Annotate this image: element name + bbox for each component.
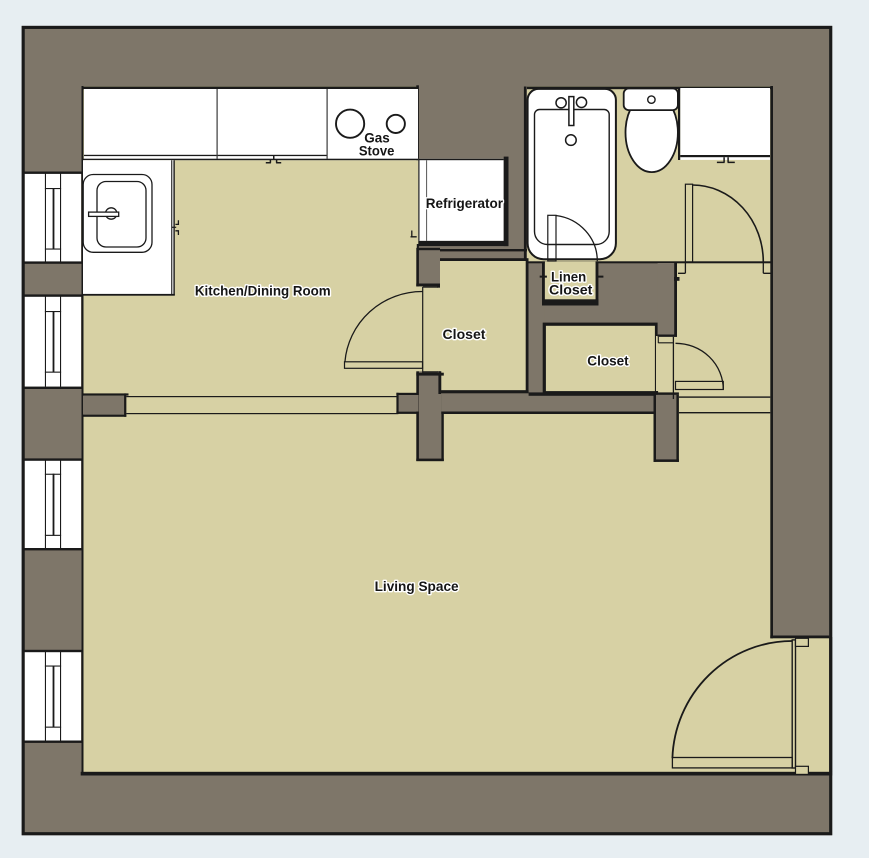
svg-text:Living Space: Living Space [375, 578, 459, 594]
svg-text:Kitchen/Dining Room: Kitchen/Dining Room [195, 282, 331, 298]
svg-text:Closet: Closet [443, 326, 486, 342]
svg-text:Refrigerator: Refrigerator [426, 195, 504, 211]
svg-text:Closet: Closet [549, 282, 593, 298]
svg-text:Closet: Closet [587, 353, 629, 369]
svg-text:Stove: Stove [359, 142, 395, 158]
